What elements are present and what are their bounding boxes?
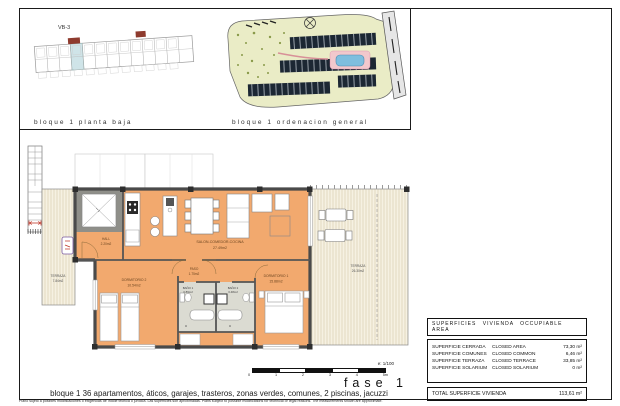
row-label-es: SUPERFICIE SOLARIUM: [432, 365, 492, 372]
dorm2-name: DORMITORIO 2: [122, 278, 147, 282]
total-value: 113,61 m²: [506, 391, 582, 397]
terrace-table-set-1: [319, 209, 353, 221]
terraza-right-name: TERRAZA: [351, 264, 367, 268]
apartment-floor-plan: TERRAZA 7.84m2: [20, 130, 411, 362]
paso-name: PASO: [190, 267, 199, 271]
bloque-description: bloque 1 36 apartamentos, áticos, garaje…: [28, 389, 410, 399]
terraza-left-area: 7.84m2: [53, 279, 64, 283]
site-plan-drawing: [218, 9, 409, 121]
dorm2-area: 10.54m2: [127, 284, 140, 288]
stairs: [28, 146, 42, 234]
unit-tag-label: VB-3: [58, 25, 70, 31]
bed-dormitorio-1: [259, 291, 309, 333]
terraza-left-name: TERRAZA: [51, 274, 67, 278]
scale-label: e: 1/100: [378, 361, 394, 366]
tick: 0: [248, 373, 250, 377]
drawing-sheet: VB-3 bloque 1 planta baja: [19, 8, 612, 400]
salon-area: 27.49m2: [213, 246, 227, 250]
row-label-es: SUPERFICIE COMUNES: [432, 351, 492, 358]
terraza-right-area: 26.30m2: [352, 269, 365, 273]
hall-name: HALL: [102, 237, 110, 241]
terraza-right: TERRAZA 26.30m2: [310, 187, 408, 345]
red-roof-marker-2: [135, 31, 145, 38]
panel-planta-label: bloque 1 planta baja: [34, 119, 133, 126]
dorm1-area: 15.88m2: [269, 280, 282, 284]
row-value: 33,85 m²: [554, 358, 582, 365]
row-label-es: SUPERFICIE TERRAZA: [432, 358, 492, 365]
table-row: SUPERFICIE SOLARIUM CLOSED SOLARIUM 0 m²: [432, 365, 582, 372]
row-value: 0 m²: [554, 365, 582, 372]
adjacent-unit-outline: [75, 154, 213, 189]
toilet-icon: [180, 293, 191, 302]
terrace-table-set-2: [318, 230, 352, 242]
total-label: TOTAL SUPERFICIE VIVIENDA: [432, 391, 506, 397]
row-value: 6,46 m²: [554, 351, 582, 358]
pool: [336, 55, 364, 66]
red-roof-marker: [68, 37, 80, 44]
row-label-en: CLOSED AREA: [492, 344, 554, 351]
stove-icon: [127, 201, 138, 214]
dorm1-name: DORMITORIO 1: [264, 274, 289, 278]
row-label-en: CLOSED SOLARIUM: [492, 365, 554, 372]
toilet-icon-2: [243, 293, 254, 302]
hall-area: 2.20m2: [101, 242, 112, 246]
panel-ordenacion-label: bloque 1 ordenacion general: [232, 119, 368, 126]
row-label-es: SUPERFICIE CERRADA: [432, 344, 492, 351]
areas-table: SUPERFICIES VIVIENDA OCCUPIABLE AREA SUP…: [427, 318, 587, 401]
row-value: 73,30 m²: [554, 344, 582, 351]
table-row: SUPERFICIE TERRAZA CLOSED TERRACE 33,85 …: [432, 358, 582, 365]
table-row: SUPERFICIE CERRADA CLOSED AREA 73,30 m²: [432, 344, 582, 351]
bano2-area: 3.48m2: [228, 290, 238, 294]
sink-icon: [166, 198, 174, 206]
salon-name: SALON-COMEDOR-COCINA: [196, 240, 244, 244]
panel-planta-baja: VB-3 bloque 1 planta baja: [20, 9, 219, 130]
plan-marker: [62, 237, 73, 254]
paso-area: 1.75m2: [189, 272, 200, 276]
architectural-plan-sheet: VB-3 bloque 1 planta baja: [0, 0, 620, 406]
areas-table-body: SUPERFICIE CERRADA CLOSED AREA 73,30 m² …: [427, 339, 587, 383]
dining-table: [185, 198, 219, 234]
tick: 1: [275, 373, 277, 377]
fase-label: fase 1: [296, 376, 408, 390]
row-label-en: CLOSED TERRACE: [492, 358, 554, 365]
row-label-en: CLOSED COMMON: [492, 351, 554, 358]
panel-ordenacion-general: bloque 1 ordenacion general: [218, 9, 411, 130]
building-strip-drawing: VB-3: [20, 9, 218, 121]
elevator: [75, 189, 123, 232]
table-row: SUPERFICIE COMUNES CLOSED COMMON 6,46 m²: [432, 351, 582, 358]
bano1-area: 3.89m2: [183, 290, 193, 294]
disclaimer-text: Plano sujeto a posibles modificaciones o…: [19, 399, 610, 403]
areas-table-title: SUPERFICIES VIVIENDA OCCUPIABLE AREA: [427, 318, 587, 336]
